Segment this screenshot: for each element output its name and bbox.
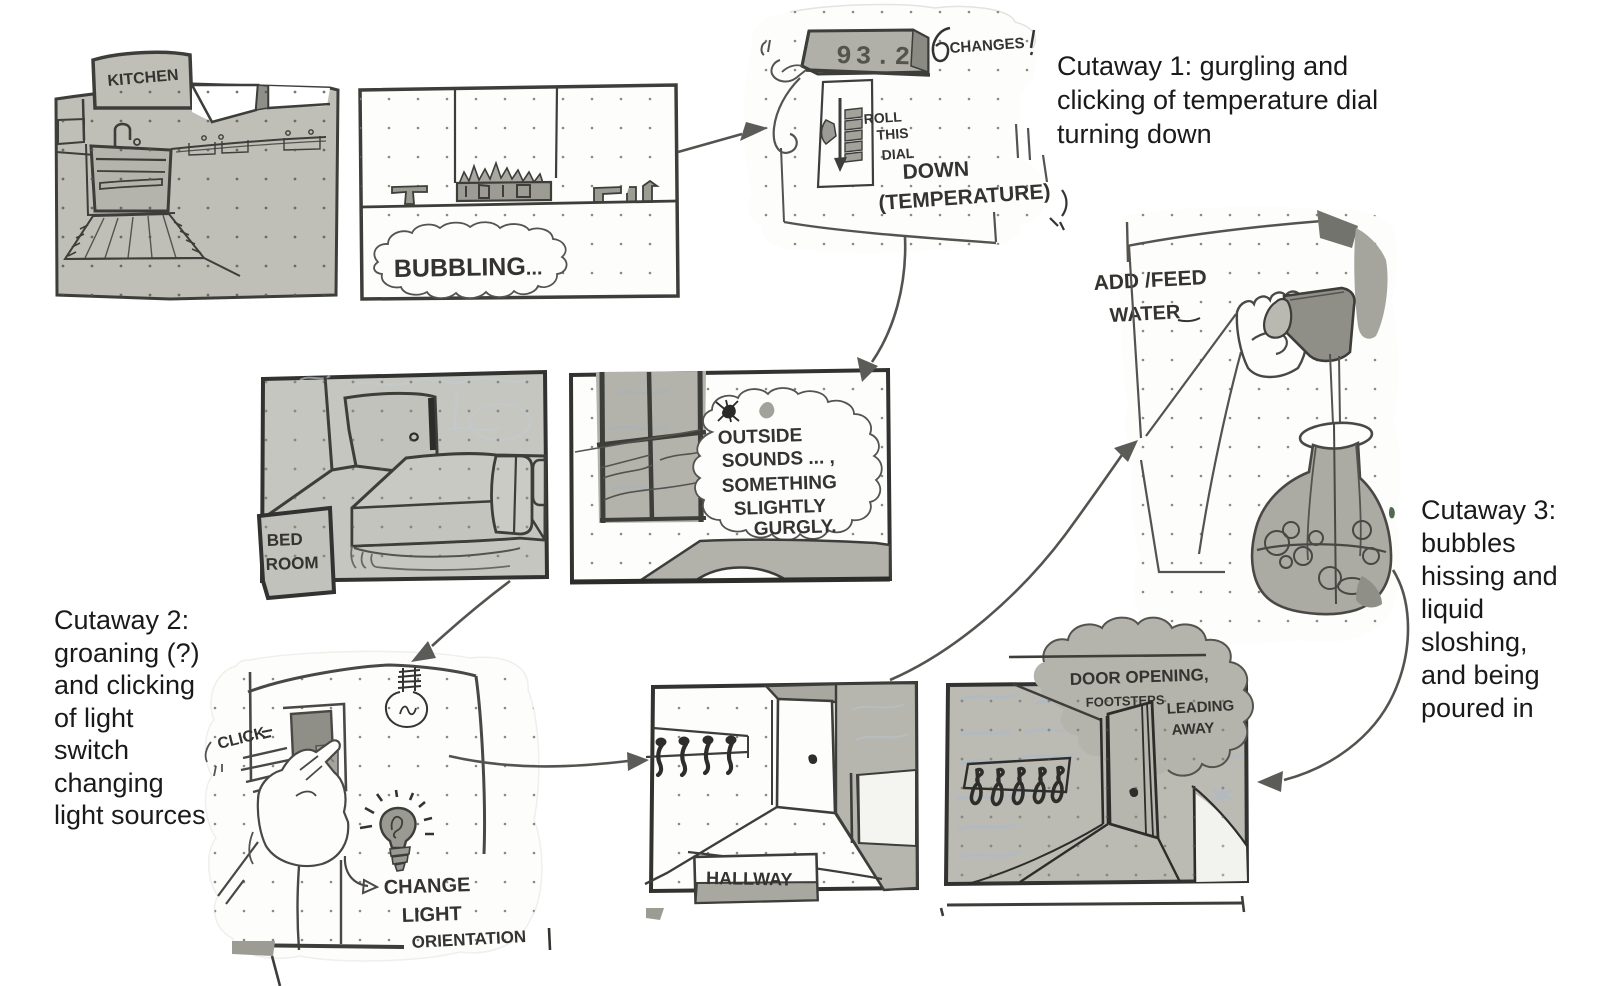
svg-text:THIS: THIS: [876, 125, 909, 143]
svg-text:HALLWAY: HALLWAY: [706, 868, 793, 890]
svg-text:WATER: WATER: [1109, 301, 1181, 327]
svg-text:LIGHT: LIGHT: [401, 903, 462, 927]
svg-text:GURGLY.: GURGLY.: [753, 516, 836, 540]
svg-text:BUBBLING...: BUBBLING...: [394, 252, 543, 283]
svg-text:CHANGE: CHANGE: [383, 874, 470, 899]
svg-text:DOWN: DOWN: [902, 158, 970, 184]
svg-text:ROLL: ROLL: [863, 108, 903, 127]
svg-text:OUTSIDE: OUTSIDE: [717, 425, 802, 449]
svg-text:SOMETHING: SOMETHING: [721, 472, 837, 497]
svg-text:SOUNDS ... ,: SOUNDS ... ,: [721, 447, 835, 472]
